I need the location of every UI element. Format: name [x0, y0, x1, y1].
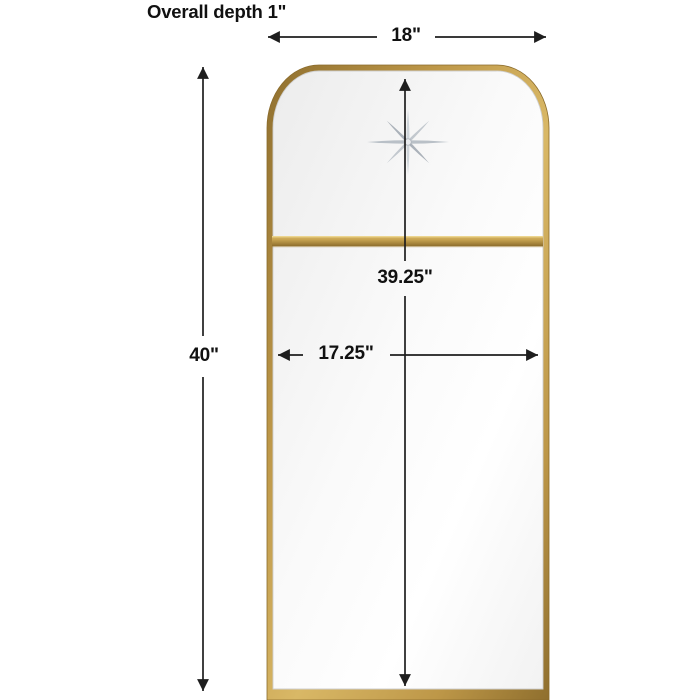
inner-width-dimension-label: 17.25"	[318, 343, 373, 365]
divider-bar	[272, 236, 543, 247]
mirror-dimension-diagram: Overall depth 1" 18" 40" 39.25" 17.25"	[0, 0, 700, 700]
overall-depth-label: Overall depth 1"	[147, 1, 286, 23]
width-dimension-label: 18"	[391, 25, 421, 47]
height-dimension-label: 40"	[189, 345, 219, 367]
inner-height-dimension-label: 39.25"	[377, 267, 432, 289]
